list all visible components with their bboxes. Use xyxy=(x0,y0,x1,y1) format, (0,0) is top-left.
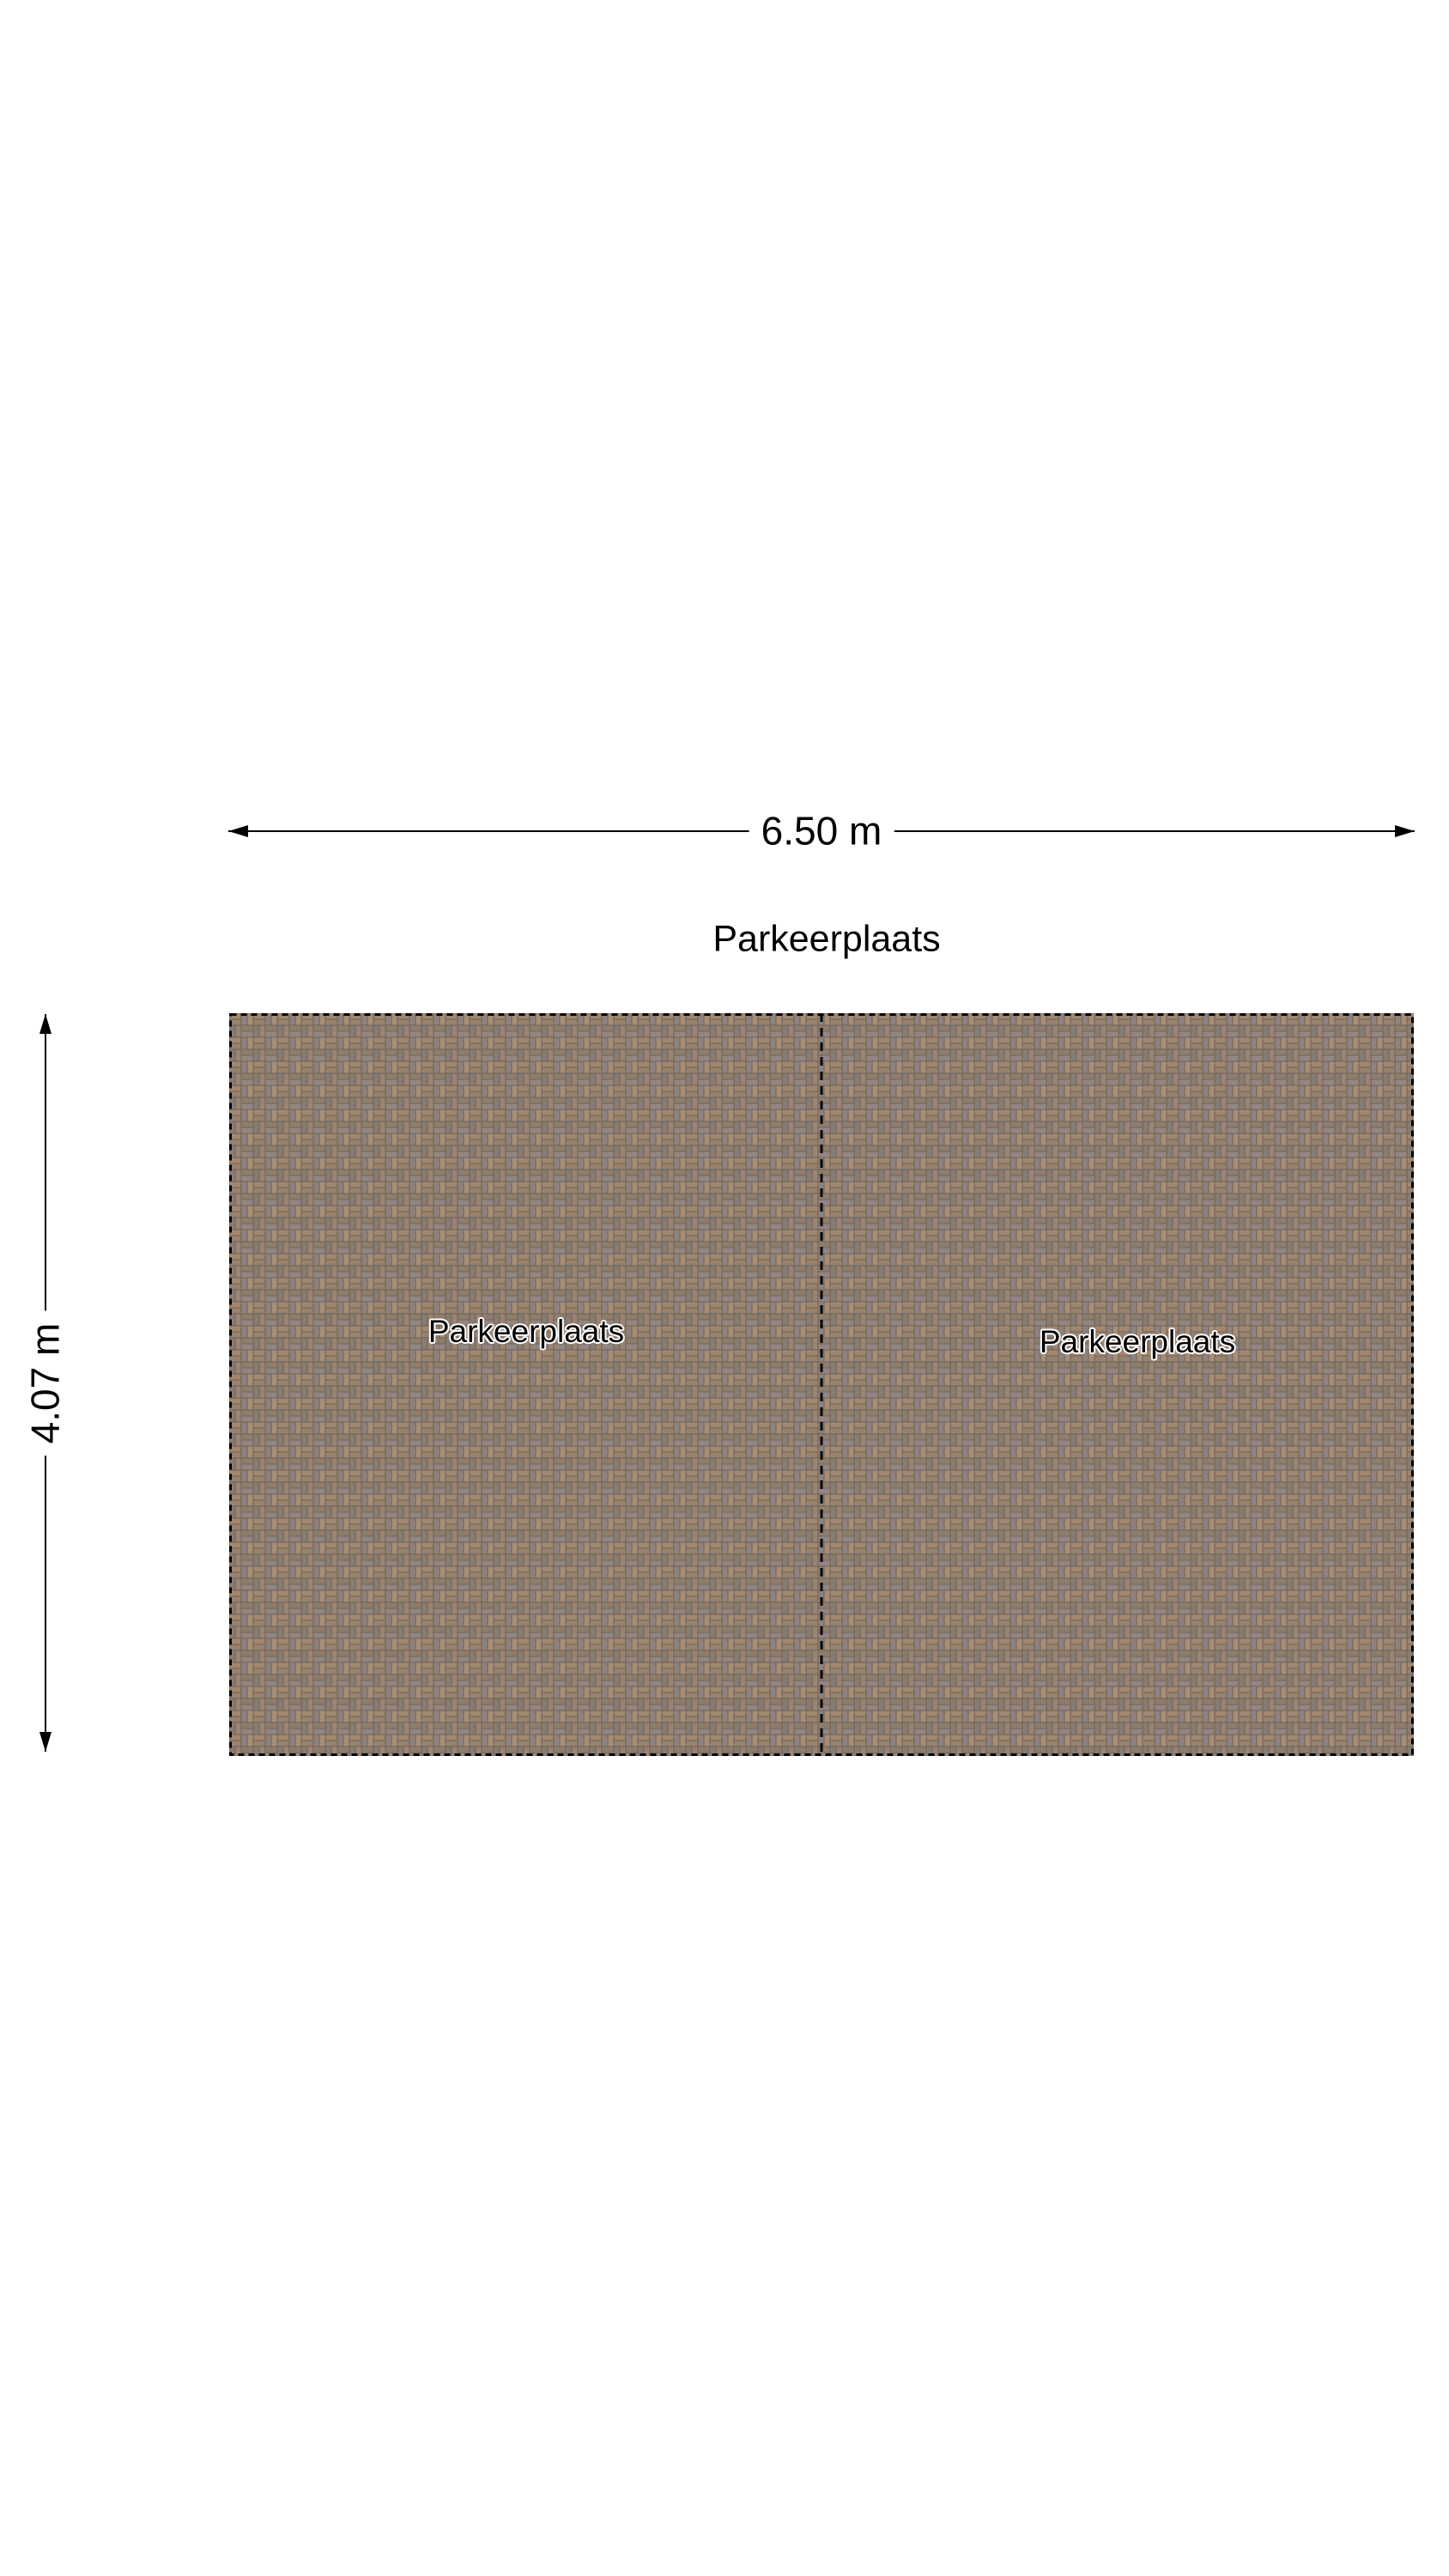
arrowhead-right-icon xyxy=(1395,825,1415,837)
arrowhead-left-icon xyxy=(228,825,248,837)
parking-space-left-label: Parkeerplaats xyxy=(428,1314,624,1350)
height-dimension-label: 4.07 m xyxy=(23,1311,69,1456)
parking-space-right-label: Parkeerplaats xyxy=(1040,1324,1235,1360)
floorplan-canvas: 6.50 m 4.07 m Parkeerplaats xyxy=(0,0,1449,2576)
parking-area-drawing xyxy=(229,1013,1414,1756)
arrowhead-down-icon xyxy=(39,1732,52,1752)
page-title: Parkeerplaats xyxy=(712,919,940,961)
arrowhead-up-icon xyxy=(39,1014,52,1034)
width-dimension-label: 6.50 m xyxy=(749,809,894,854)
parking-area xyxy=(229,1013,1414,1756)
